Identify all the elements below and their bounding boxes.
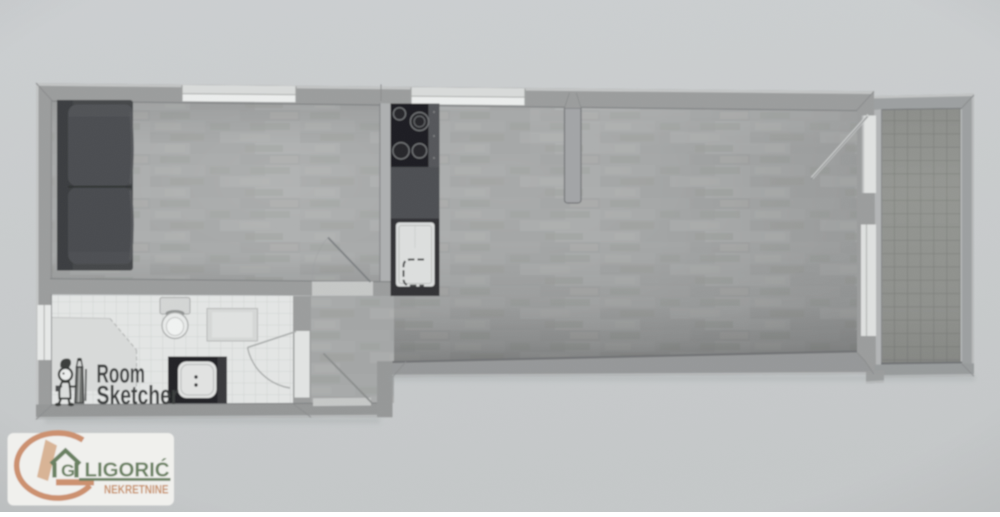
svg-text:LIGORIĆ: LIGORIĆ — [85, 458, 170, 482]
svg-text:NEKRETNINE: NEKRETNINE — [104, 483, 169, 497]
svg-text:G: G — [61, 461, 75, 481]
